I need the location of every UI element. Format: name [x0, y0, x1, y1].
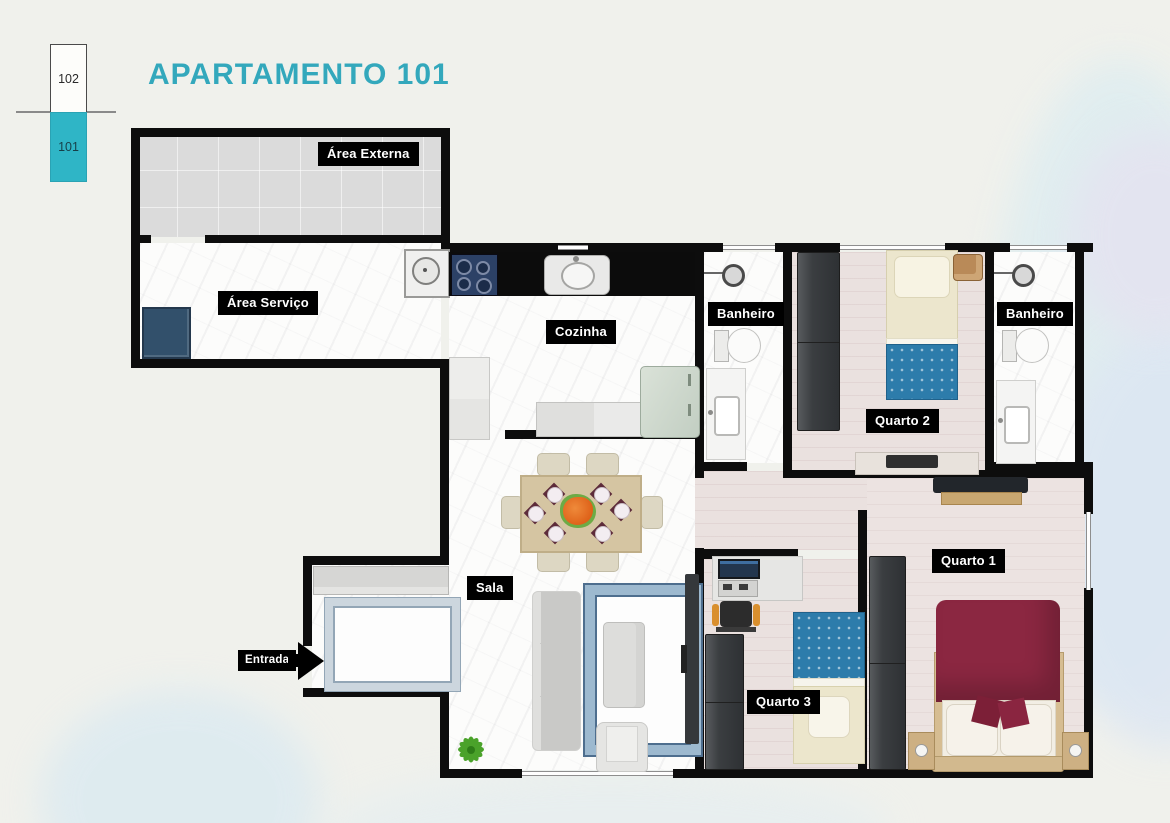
bathroom-sink — [1004, 406, 1030, 444]
wardrobe — [797, 252, 840, 431]
kitchen-sink-basin — [561, 262, 595, 290]
bed-pillow — [894, 256, 950, 298]
dining-chair — [537, 453, 570, 476]
plate — [547, 487, 563, 503]
room-label-banheiro-1: Banheiro — [708, 302, 784, 326]
shower-head — [722, 264, 745, 287]
tv-panel — [685, 574, 699, 744]
plate — [595, 526, 611, 542]
wall-segment — [1075, 243, 1084, 470]
nightstand-lamp — [1069, 744, 1082, 757]
wardrobe — [705, 634, 744, 770]
accent-cushion — [997, 697, 1029, 729]
bed-blanket — [886, 344, 958, 400]
room-label-banheiro-2: Banheiro — [997, 302, 1073, 326]
room-label-quarto-1: Quarto 1 — [932, 549, 1005, 573]
unit-tab-101[interactable]: 101 — [50, 112, 87, 182]
floor-corridor — [695, 471, 867, 550]
wall-segment — [985, 252, 994, 470]
printer-slot — [739, 584, 748, 590]
room-label-area-servico: Área Serviço — [218, 291, 318, 315]
bed-double-blanket — [936, 600, 1060, 702]
wall-segment — [1084, 462, 1093, 514]
plate — [528, 506, 544, 522]
kitchen-cabinet — [449, 357, 490, 440]
kitchen-bench — [536, 402, 650, 437]
tv-mount — [681, 645, 687, 673]
cooktop-burner — [476, 261, 490, 275]
washing-machine-knob — [423, 268, 427, 272]
sofa — [532, 591, 581, 751]
wall-tv — [933, 477, 1028, 493]
shower-head — [1012, 264, 1035, 287]
sofa-seam — [540, 643, 578, 644]
toilet-bowl — [1015, 328, 1049, 363]
plate — [594, 487, 610, 503]
tv-shelf — [941, 492, 1022, 505]
page-title: APARTAMENTO 101 — [148, 58, 450, 92]
wall-segment — [775, 243, 840, 252]
window — [723, 245, 775, 250]
wall-segment — [205, 235, 449, 243]
dining-chair — [641, 496, 663, 529]
wall-segment — [131, 235, 140, 368]
toilet-bowl — [727, 328, 761, 363]
bed-blanket — [793, 612, 865, 680]
cooktop-burner — [476, 278, 492, 294]
room-label-quarto-2: Quarto 2 — [866, 409, 939, 433]
wall-segment — [131, 128, 140, 243]
cooktop-burner — [457, 277, 471, 291]
plate — [548, 526, 564, 542]
armchair-seat — [606, 726, 638, 762]
entrance-arrow-icon — [298, 642, 324, 680]
room-label-area-externa: Área Externa — [318, 142, 419, 166]
bathroom-faucet — [708, 410, 713, 415]
wall-segment — [131, 128, 450, 137]
kitchen-sink-faucet — [573, 256, 579, 262]
laptop — [718, 559, 760, 579]
desk-chair-arm — [753, 604, 760, 626]
plant-center — [467, 746, 475, 754]
window — [522, 771, 673, 776]
wall-segment — [131, 359, 447, 368]
wall-segment — [440, 688, 449, 778]
printer-slot — [723, 584, 732, 590]
desk-chair-base — [716, 627, 756, 632]
wall-segment — [303, 556, 449, 565]
unit-tab-102[interactable]: 102 — [50, 44, 87, 114]
watercolor-splash — [40, 690, 320, 823]
window — [1086, 512, 1091, 590]
wall-segment — [441, 128, 450, 252]
basket — [953, 254, 983, 281]
laundry-tank — [142, 307, 191, 359]
coffee-table — [603, 622, 645, 708]
desk-chair-arm — [712, 604, 719, 626]
plate — [614, 503, 630, 519]
sideboard — [313, 566, 449, 595]
dresser-tv — [886, 455, 938, 468]
entry-rug — [325, 598, 460, 691]
desk-chair — [720, 601, 752, 627]
bed-headboard — [932, 756, 1064, 772]
nightstand-lamp — [915, 744, 928, 757]
bathroom-faucet — [998, 418, 1003, 423]
wall-segment — [440, 769, 522, 778]
wall-segment — [695, 462, 747, 471]
dining-chair — [586, 453, 619, 476]
wall-segment — [695, 243, 704, 478]
wall-segment — [783, 252, 792, 470]
wall-segment — [704, 243, 723, 252]
fridge — [640, 366, 700, 438]
fridge-handle — [688, 374, 691, 386]
floorplan-page: 102 101 APARTAMENTO 101 — [0, 0, 1170, 823]
window — [1010, 245, 1067, 250]
fridge-handle — [688, 404, 691, 416]
sofa-seam — [540, 696, 578, 697]
bathroom-sink — [714, 396, 740, 436]
cooktop-burner — [456, 259, 472, 275]
room-label-sala: Sala — [467, 576, 513, 600]
room-label-quarto-3: Quarto 3 — [747, 690, 820, 714]
wall-segment — [440, 359, 449, 565]
wall-segment — [303, 556, 312, 646]
window — [558, 245, 588, 250]
wardrobe — [869, 556, 906, 770]
room-label-cozinha: Cozinha — [546, 320, 616, 344]
